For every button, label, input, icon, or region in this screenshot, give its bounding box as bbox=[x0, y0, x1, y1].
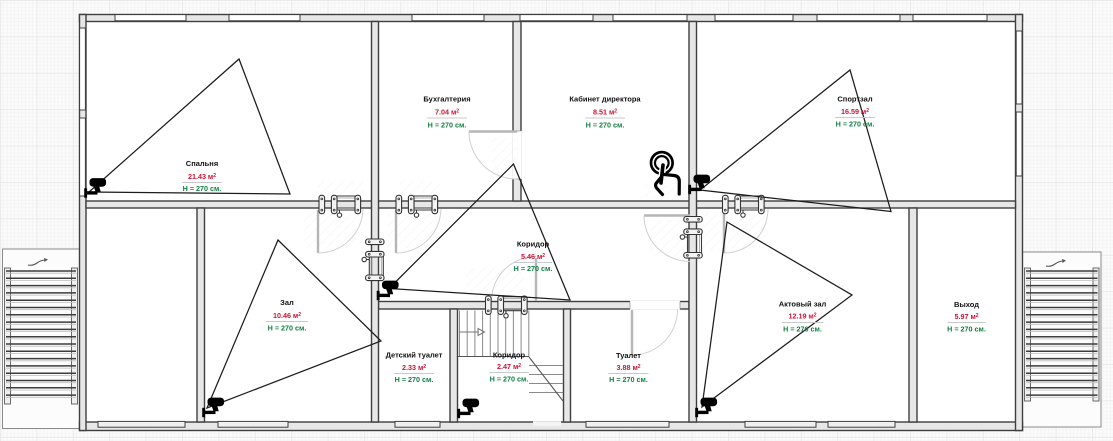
svg-text:H = 270 см.: H = 270 см. bbox=[268, 324, 307, 333]
svg-text:Коридор: Коридор bbox=[517, 240, 550, 249]
svg-text:5.97 м2: 5.97 м2 bbox=[954, 312, 978, 321]
svg-text:Актовый зал: Актовый зал bbox=[779, 300, 827, 309]
svg-text:H = 270 см.: H = 270 см. bbox=[514, 264, 553, 273]
svg-text:Туалет: Туалет bbox=[616, 351, 641, 360]
svg-text:2.33 м2: 2.33 м2 bbox=[402, 363, 426, 372]
svg-text:H = 270 см.: H = 270 см. bbox=[395, 375, 434, 384]
svg-text:3.88 м2: 3.88 м2 bbox=[616, 363, 640, 372]
svg-text:Детский туалет: Детский туалет bbox=[386, 351, 443, 360]
svg-text:Коридор: Коридор bbox=[493, 351, 526, 360]
svg-text:H = 270 см.: H = 270 см. bbox=[586, 121, 625, 130]
svg-text:10.46 м2: 10.46 м2 bbox=[273, 311, 301, 320]
svg-text:16.59 м2: 16.59 м2 bbox=[841, 107, 869, 116]
svg-text:Кабинет директора: Кабинет директора bbox=[569, 95, 641, 104]
svg-text:21.43 м2: 21.43 м2 bbox=[188, 172, 216, 181]
svg-text:8.51 м2: 8.51 м2 bbox=[593, 108, 617, 117]
svg-text:H = 270 см.: H = 270 см. bbox=[783, 325, 822, 334]
svg-text:12.19 м2: 12.19 м2 bbox=[788, 312, 816, 321]
svg-text:7.04 м2: 7.04 м2 bbox=[435, 108, 459, 117]
svg-text:Выход: Выход bbox=[954, 300, 979, 309]
svg-text:Зал: Зал bbox=[280, 298, 294, 307]
svg-text:H = 270 см.: H = 270 см. bbox=[609, 375, 648, 384]
svg-text:H = 270 см.: H = 270 см. bbox=[490, 375, 529, 384]
svg-text:Спортзал: Спортзал bbox=[837, 95, 872, 104]
svg-text:2.47 м2: 2.47 м2 bbox=[497, 362, 521, 371]
svg-text:H = 270 см.: H = 270 см. bbox=[947, 325, 986, 334]
svg-text:Спальня: Спальня bbox=[186, 159, 218, 168]
svg-text:H = 270 см.: H = 270 см. bbox=[836, 120, 875, 129]
svg-text:H = 270 см.: H = 270 см. bbox=[428, 121, 467, 130]
svg-text:5.46 м2: 5.46 м2 bbox=[521, 252, 545, 261]
svg-text:H = 270 см.: H = 270 см. bbox=[183, 184, 222, 193]
svg-text:Бухгалтерия: Бухгалтерия bbox=[423, 95, 470, 104]
